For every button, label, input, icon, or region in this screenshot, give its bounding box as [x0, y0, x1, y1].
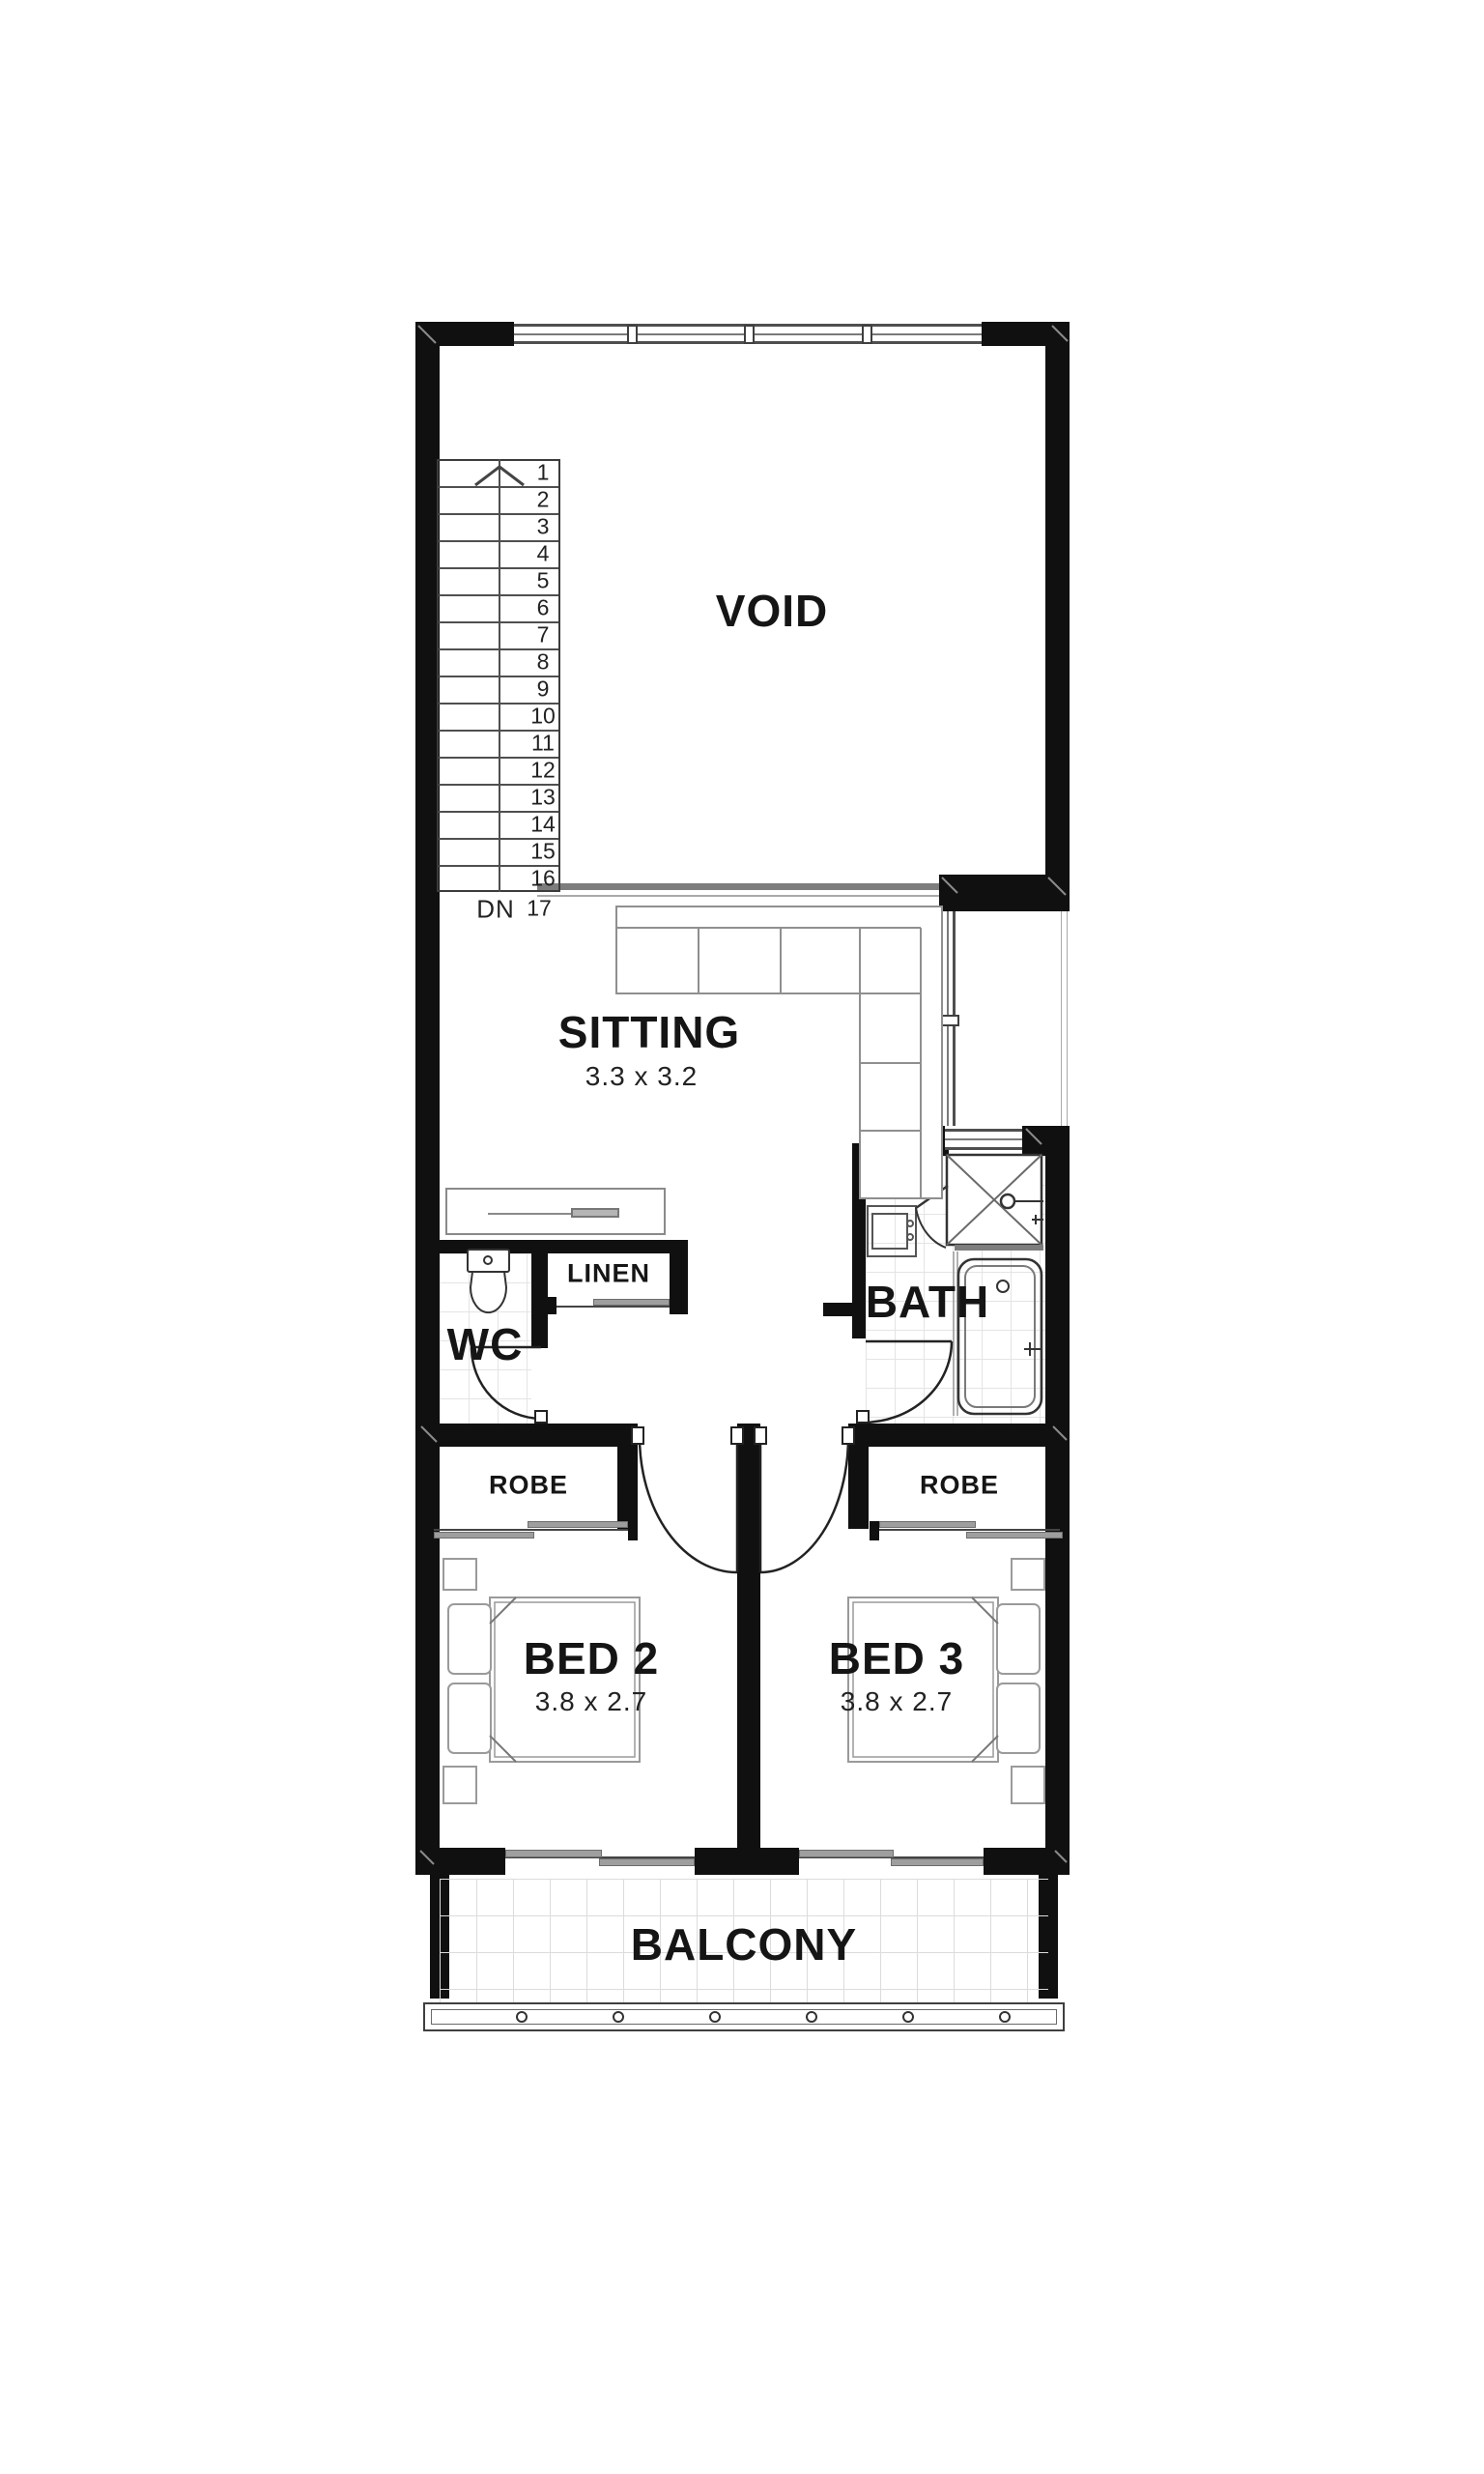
bed2-door — [640, 1433, 737, 1572]
bath-door — [863, 1341, 952, 1423]
room-label-linen: LINEN — [567, 1259, 650, 1289]
room-label-balcony: BALCONY — [631, 1918, 857, 1971]
fixtures-layer — [0, 0, 1484, 2474]
room-label-bath: BATH — [866, 1276, 989, 1328]
bed3-door — [760, 1433, 848, 1572]
floor-plan: 1 2 3 4 5 6 7 8 9 10 11 12 13 14 15 16 1… — [0, 0, 1484, 2474]
room-label-bed2: BED 2 — [524, 1632, 659, 1684]
room-label-wc: WC — [447, 1318, 524, 1370]
shower-tub-divider — [955, 1245, 1043, 1251]
stair-direction-arrow-icon — [475, 467, 524, 485]
vanity-fixture — [868, 1206, 916, 1256]
room-label-robe-right: ROBE — [920, 1471, 999, 1501]
room-dimensions-bed3: 3.8 x 2.7 — [841, 1686, 953, 1717]
toilet-fixture — [468, 1250, 509, 1312]
room-label-robe-left: ROBE — [489, 1471, 568, 1501]
room-label-bed3: BED 3 — [829, 1632, 964, 1684]
room-label-sitting: SITTING — [558, 1006, 740, 1058]
room-label-void: VOID — [716, 585, 828, 637]
room-dimensions-sitting: 3.3 x 3.2 — [585, 1061, 698, 1092]
desk-furniture — [446, 1189, 665, 1234]
balcony-railing-posts — [517, 2012, 1010, 2022]
room-dimensions-bed2: 3.8 x 2.7 — [535, 1686, 647, 1717]
door-jamb-blocks — [535, 1411, 869, 1444]
